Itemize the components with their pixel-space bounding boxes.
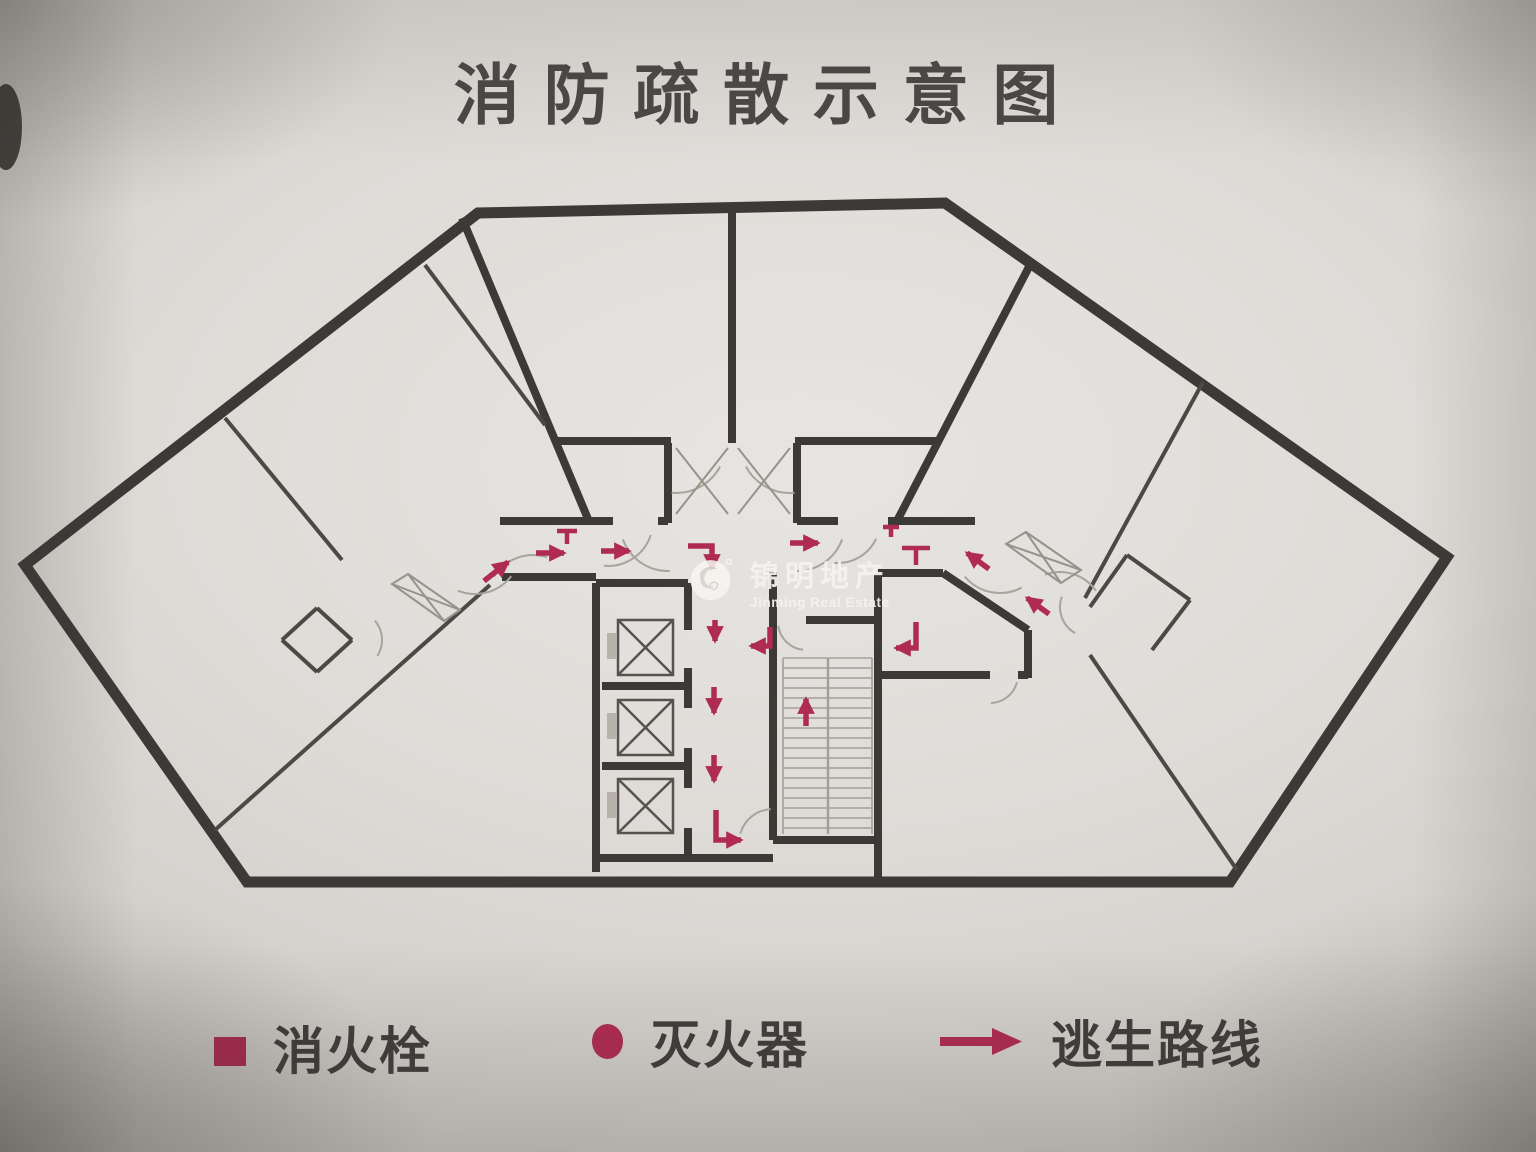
evacuation-sign-photo: 消防疏散示意图 锦明地产 Jinming Real Estate 消火栓 灭火器 [0,0,1536,1152]
escape-route-arrow-symbol [938,1025,1024,1057]
watermark-brand-name: 锦明地产 [750,562,890,592]
watermark-brand-subtitle: Jinming Real Estate [750,595,890,610]
legend-label-hydrant: 消火栓 [273,1010,432,1084]
hydrant-square-symbol [214,1037,246,1066]
legend-item-escape-route: 逃生路线 [938,1004,1263,1078]
extinguisher-circle-symbol [592,1024,623,1059]
jinming-logo-icon [688,556,738,606]
legend-item-hydrant: 消火栓 [214,1010,432,1084]
legend-item-extinguisher: 灭火器 [592,1004,809,1078]
legend-label-extinguisher: 灭火器 [650,1004,809,1078]
legend: 消火栓 灭火器 逃生路线 [0,996,1536,1086]
watermark-text: 锦明地产 Jinming Real Estate [750,556,890,610]
watermark: 锦明地产 Jinming Real Estate [688,556,890,610]
legend-label-escape-route: 逃生路线 [1051,1004,1263,1078]
